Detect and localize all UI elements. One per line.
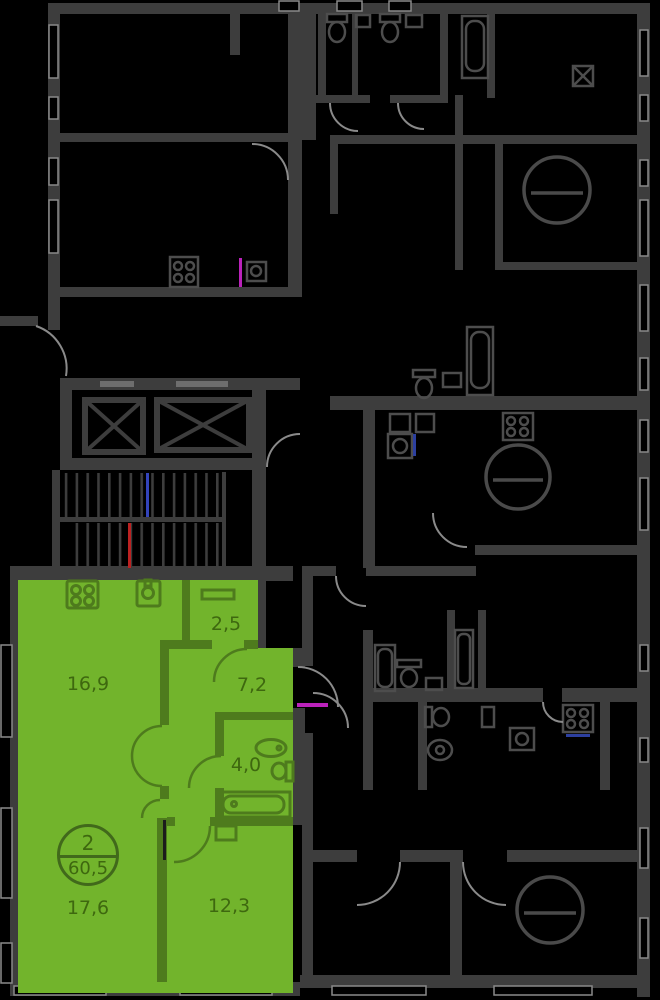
duct-icon <box>573 66 593 86</box>
bathtub-icon <box>462 16 488 78</box>
sink-icon <box>388 434 412 458</box>
stove-icon <box>503 413 533 440</box>
sink-line-blue <box>413 434 416 456</box>
bathtub-icon <box>455 630 473 688</box>
elevator-door-mark <box>100 381 134 387</box>
bidet-icon <box>428 740 452 760</box>
toilet-icon <box>425 707 449 727</box>
sink-line-blue <box>566 734 590 737</box>
stove-icon <box>170 257 198 287</box>
bathtub-icon <box>467 327 493 395</box>
sink-icon <box>510 728 534 750</box>
washbasin-icon <box>406 15 422 27</box>
entrance-line-magenta <box>239 258 242 287</box>
cabinet-icon <box>390 414 410 432</box>
stove-icon <box>563 705 593 732</box>
toilet-icon <box>380 14 400 42</box>
bathtub-icon <box>375 645 395 691</box>
toilet-icon <box>327 14 347 42</box>
toilet-icon <box>397 660 421 687</box>
apartment-badge-dimmed <box>517 877 583 943</box>
highlighted-apartment-hotspot[interactable] <box>18 580 293 993</box>
sink-icon <box>247 262 266 281</box>
entrance-line-magenta <box>297 703 328 707</box>
toilet-icon <box>413 370 435 398</box>
apartment-badge-dimmed <box>486 445 550 509</box>
floorplan-canvas: 16,9 2,5 7,2 4,0 17,6 12,3 2 60,5 <box>0 0 660 1000</box>
shower-icon <box>482 707 494 727</box>
washbasin-icon <box>443 373 461 387</box>
elevator-shafts <box>85 381 249 452</box>
washbasin-icon <box>356 15 370 27</box>
stair-marker-red <box>128 523 131 568</box>
cabinet-icon <box>416 414 434 432</box>
stair-marker-blue <box>146 473 149 517</box>
elevator-door-mark <box>176 381 228 387</box>
apartment-badge-dimmed <box>524 157 590 223</box>
